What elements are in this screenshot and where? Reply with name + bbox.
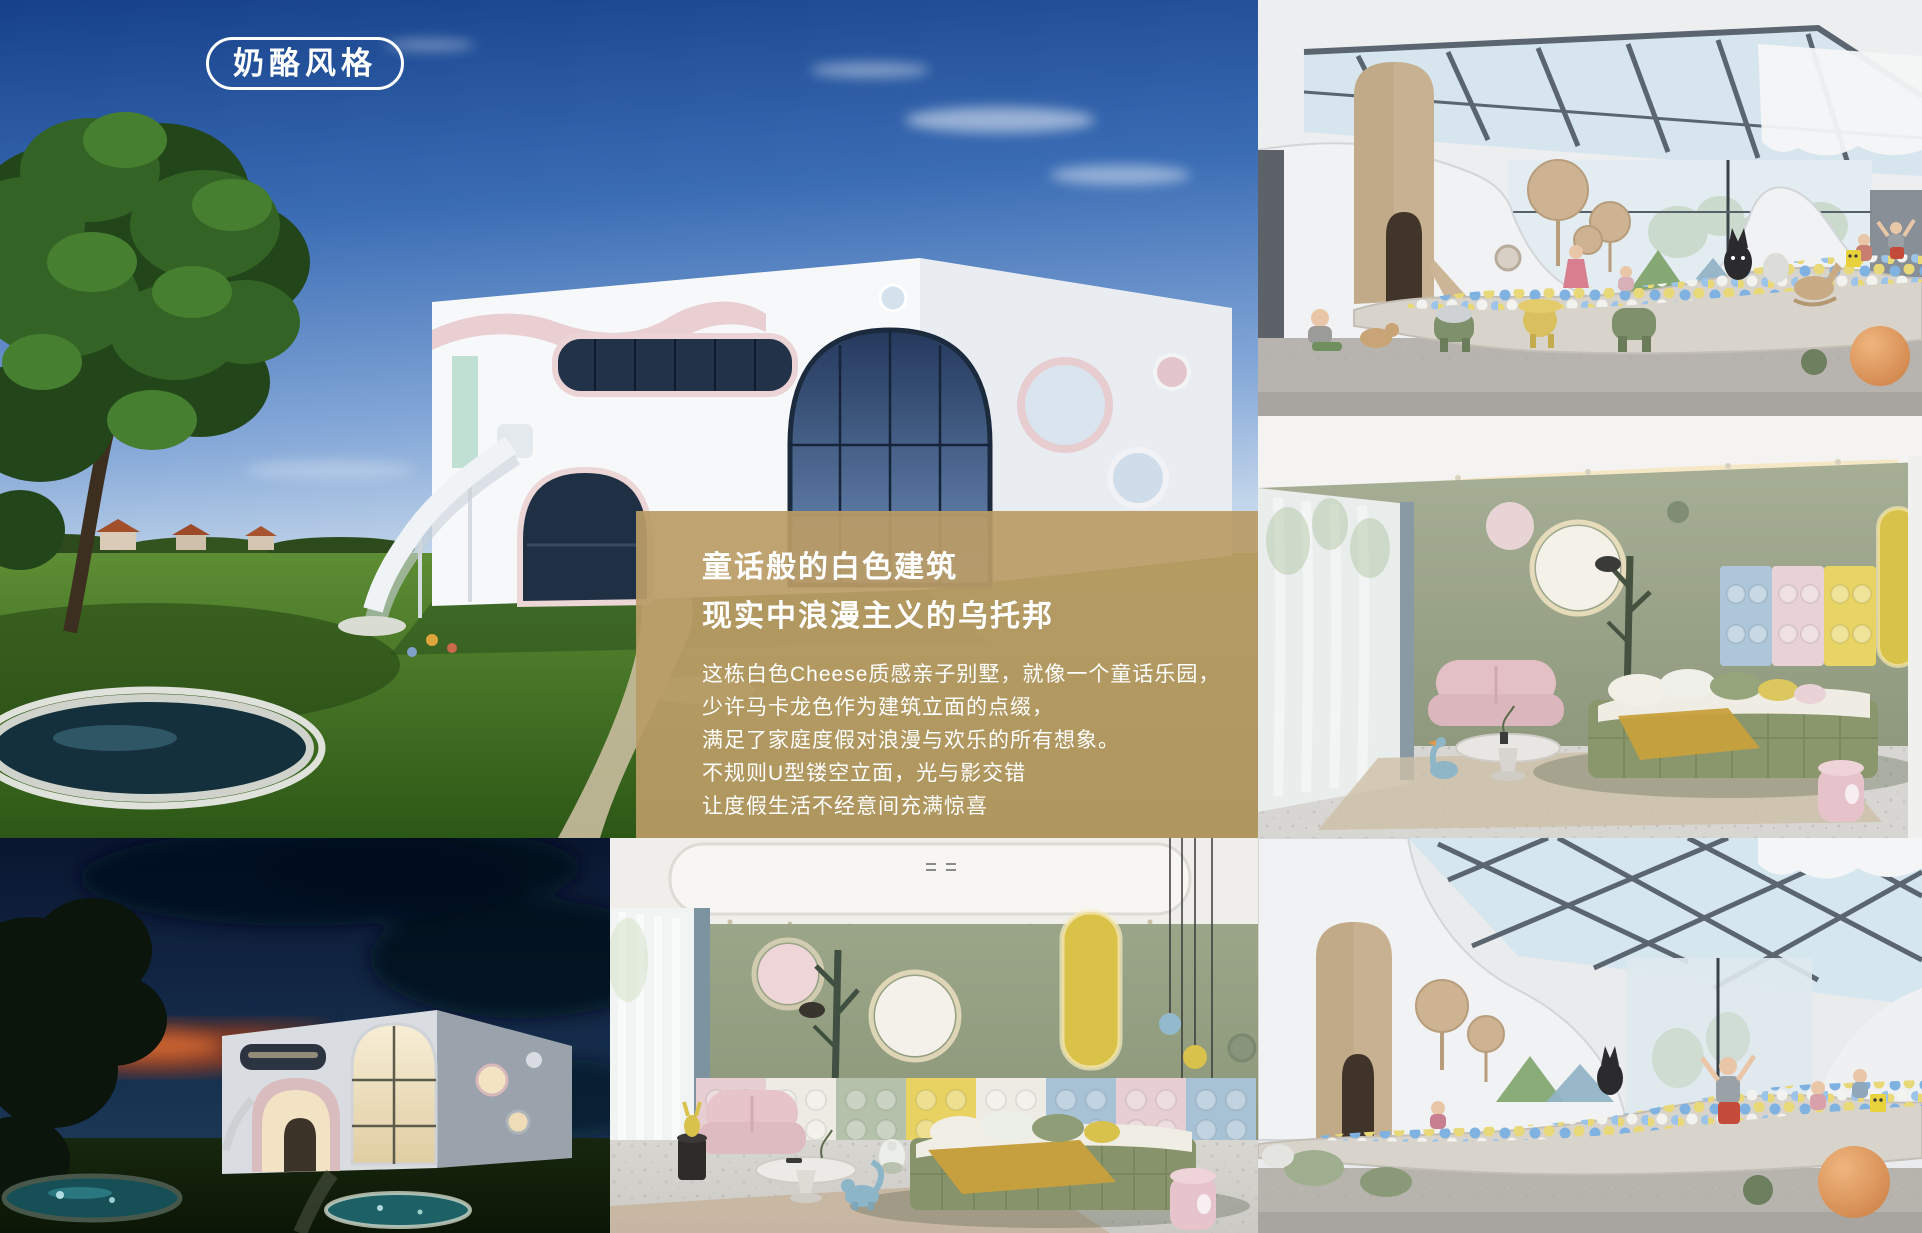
orange-ball <box>1818 1146 1890 1218</box>
overlay-body-line: 满足了家庭度假对浪漫与欢乐的所有想象。 <box>702 724 1222 757</box>
pink-stool <box>1818 760 1864 822</box>
exterior-night-illustration <box>0 838 610 1233</box>
bedroom-corner-illustration <box>1258 416 1922 838</box>
overlay-body: 这栋白色Cheese质感亲子别墅，就像一个童话乐园， 少许马卡龙色作为建筑立面的… <box>702 658 1222 823</box>
collage-canvas: 奶酪风格 童话般的白色建筑 现实中浪漫主义的乌托邦 这栋白色Cheese质感亲子… <box>0 0 1922 1233</box>
overlay-body-line: 少许马卡龙色作为建筑立面的点缀， <box>702 691 1222 724</box>
overlay-body-line: 不规则U型镂空立面，光与影交错 <box>702 757 1222 790</box>
photo-bedroom-front <box>610 838 1258 1233</box>
overlay-title-line2: 现实中浪漫主义的乌托邦 <box>702 600 1054 633</box>
night-building <box>222 1010 572 1174</box>
pink-stool <box>1170 1168 1216 1230</box>
overlay-title-line1: 童话般的白色建筑 <box>702 551 958 584</box>
photo-playroom-bottom <box>1258 838 1922 1233</box>
overlay-body-line: 让度假生活不经意间充满惊喜 <box>702 790 1222 823</box>
overlay-body-line: 这栋白色Cheese质感亲子别墅，就像一个童话乐园， <box>702 658 1222 691</box>
silo-tower <box>1316 922 1392 1140</box>
playroom-wide-illustration <box>1258 838 1922 1233</box>
text-overlay-card: 童话般的白色建筑 现实中浪漫主义的乌托邦 这栋白色Cheese质感亲子别墅，就像… <box>636 511 1258 838</box>
style-badge-label: 奶酪风格 <box>233 46 377 81</box>
overlay-title: 童话般的白色建筑 现实中浪漫主义的乌托邦 <box>702 543 1222 641</box>
playroom-illustration <box>1258 0 1922 416</box>
bedroom-front-illustration <box>610 838 1258 1233</box>
photo-bedroom-corner <box>1258 416 1922 838</box>
green-ball <box>1743 1175 1773 1205</box>
style-badge: 奶酪风格 <box>206 37 404 90</box>
photo-playroom-top <box>1258 0 1922 416</box>
pool <box>0 690 322 806</box>
photo-exterior-night <box>0 838 610 1233</box>
